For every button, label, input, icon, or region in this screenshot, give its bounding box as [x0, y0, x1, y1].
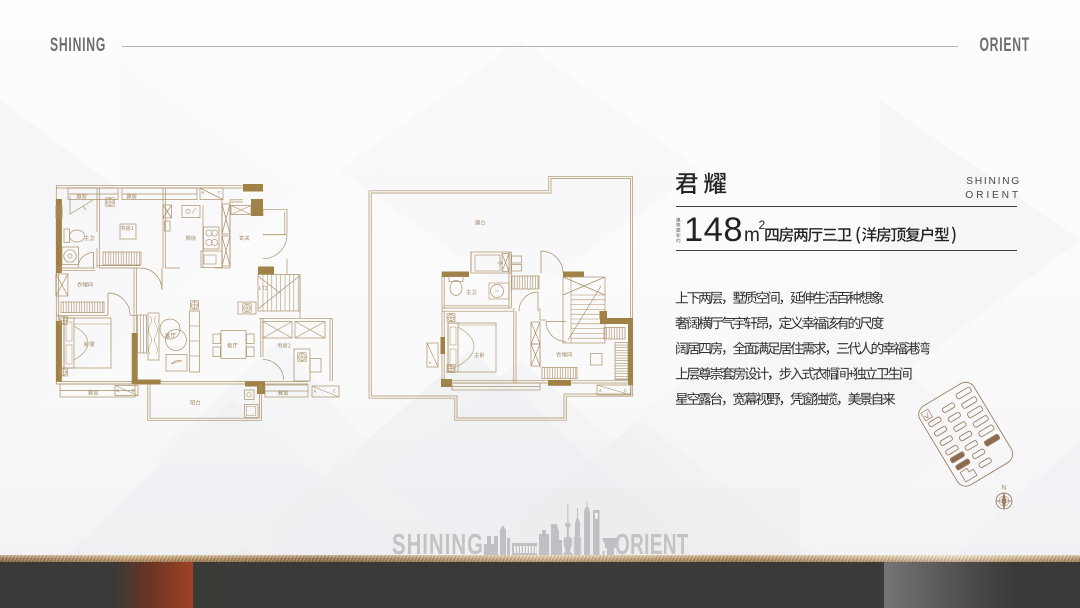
svg-text:148: 148: [684, 211, 743, 249]
svg-text:2: 2: [759, 218, 766, 232]
svg-text:SHINING: SHINING: [966, 176, 1021, 187]
svg-text:N: N: [1002, 485, 1007, 492]
svg-text:ORIENT: ORIENT: [965, 190, 1021, 201]
svg-text:m: m: [744, 225, 760, 246]
